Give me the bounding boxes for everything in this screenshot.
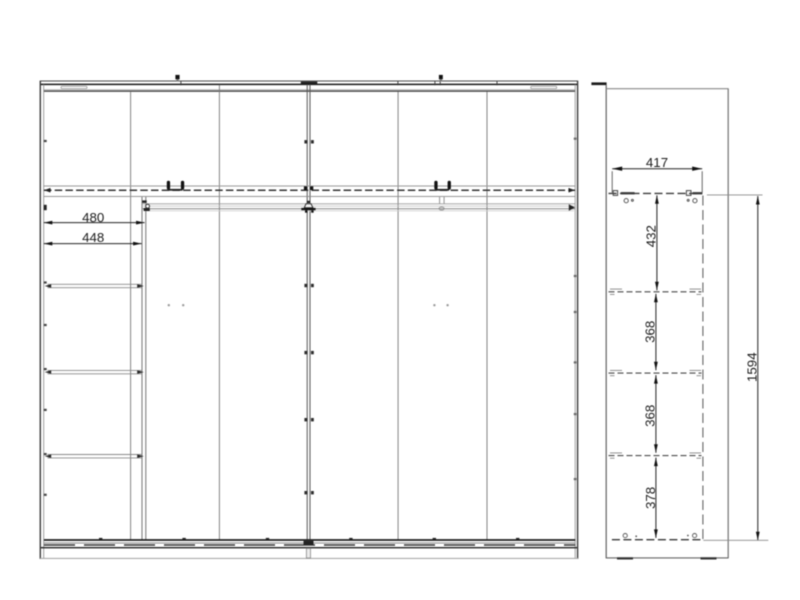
svg-text:368: 368 (643, 405, 658, 427)
svg-text:448: 448 (82, 230, 104, 245)
svg-text:1594: 1594 (744, 352, 759, 382)
svg-text:368: 368 (643, 321, 658, 343)
svg-text:432: 432 (644, 225, 659, 247)
svg-text:417: 417 (646, 155, 668, 170)
